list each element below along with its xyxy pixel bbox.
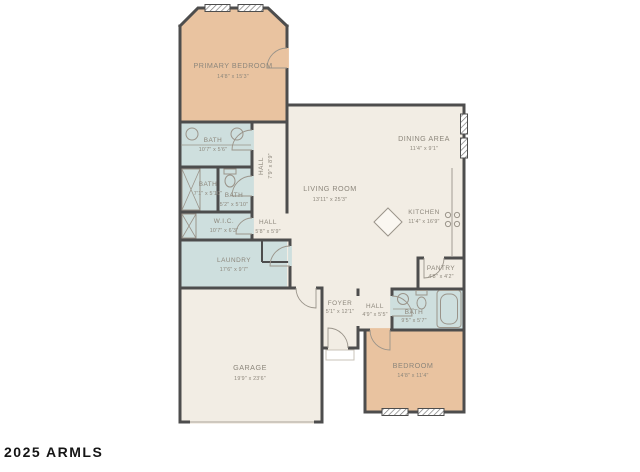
label-wic: W.I.C. (214, 218, 234, 225)
dims-primary-bedroom: 14'8" x 15'3" (217, 74, 249, 80)
dims-dining-area: 11'4" x 9'1" (410, 146, 438, 152)
room-bath-2 (180, 167, 218, 212)
label-living-room: LIVING ROOM (303, 184, 356, 193)
floor-plan: PRIMARY BEDROOM 14'8" x 15'3" BATH 10'7"… (0, 0, 640, 472)
label-garage: GARAGE (233, 363, 267, 372)
window-primary-bedroom-1 (205, 5, 230, 12)
label-laundry: LAUNDRY (217, 257, 251, 264)
label-bath-lower: BATH (405, 309, 424, 316)
dims-garage: 19'9" x 23'6" (234, 376, 266, 382)
label-bedroom-2: BEDROOM (393, 361, 434, 370)
room-foyer (322, 290, 358, 348)
dims-bath-2: 7'1" x 5'10" (194, 191, 223, 197)
dims-bedroom-2: 14'8" x 11'4" (397, 373, 428, 379)
room-garage (180, 288, 322, 422)
label-bath-primary: BATH (204, 137, 223, 144)
entry-stoop (326, 350, 354, 360)
dims-hall-lower: 4'9" x 5'5" (362, 312, 387, 318)
dims-bath-lower: 9'5" x 5'7" (401, 318, 426, 324)
label-bath-3: BATH (225, 192, 244, 199)
label-hall-lower: HALL (366, 303, 384, 310)
room-bath-primary (180, 122, 252, 167)
label-dining-area: DINING AREA (398, 134, 450, 143)
room-hall-lower (358, 290, 392, 330)
dims-pantry: 4'8" x 4'2" (428, 274, 453, 280)
dims-hall-mid: 5'8" x 5'9" (255, 229, 280, 235)
dims-bath-primary: 10'7" x 5'6" (199, 147, 228, 153)
label-primary-bedroom: PRIMARY BEDROOM (193, 61, 272, 70)
label-foyer: FOYER (328, 300, 353, 307)
window-bedroom-2-1 (382, 409, 408, 416)
watermark: 2025 ARMLS (4, 444, 103, 460)
label-kitchen: KITCHEN (408, 209, 440, 216)
window-dining-1 (461, 114, 468, 134)
window-dining-2 (461, 138, 468, 158)
dims-wic: 10'7" x 6'3" (210, 228, 239, 234)
room-wic (180, 212, 252, 240)
dims-living-room: 13'11" x 25'3" (313, 197, 347, 203)
room-laundry (180, 240, 290, 288)
room-bedroom-2 (365, 330, 464, 412)
dims-hall-upper: 7'9" x 8'9" (268, 153, 274, 178)
window-primary-bedroom-2 (238, 5, 263, 12)
dims-kitchen: 11'4" x 16'9" (408, 219, 439, 225)
floor-plan-page: PRIMARY BEDROOM 14'8" x 15'3" BATH 10'7"… (0, 0, 640, 472)
dims-bath-3: 5'2" x 5'10" (220, 202, 249, 208)
dims-laundry: 17'6" x 9'7" (220, 267, 249, 273)
label-hall-upper: HALL (258, 157, 265, 175)
window-bedroom-2-2 (418, 409, 444, 416)
room-hall-mid (252, 212, 287, 240)
label-hall-mid: HALL (259, 219, 277, 226)
label-pantry: PANTRY (427, 265, 456, 272)
label-bath-2: BATH (199, 181, 218, 188)
dims-foyer: 5'1" x 12'1" (326, 309, 355, 315)
